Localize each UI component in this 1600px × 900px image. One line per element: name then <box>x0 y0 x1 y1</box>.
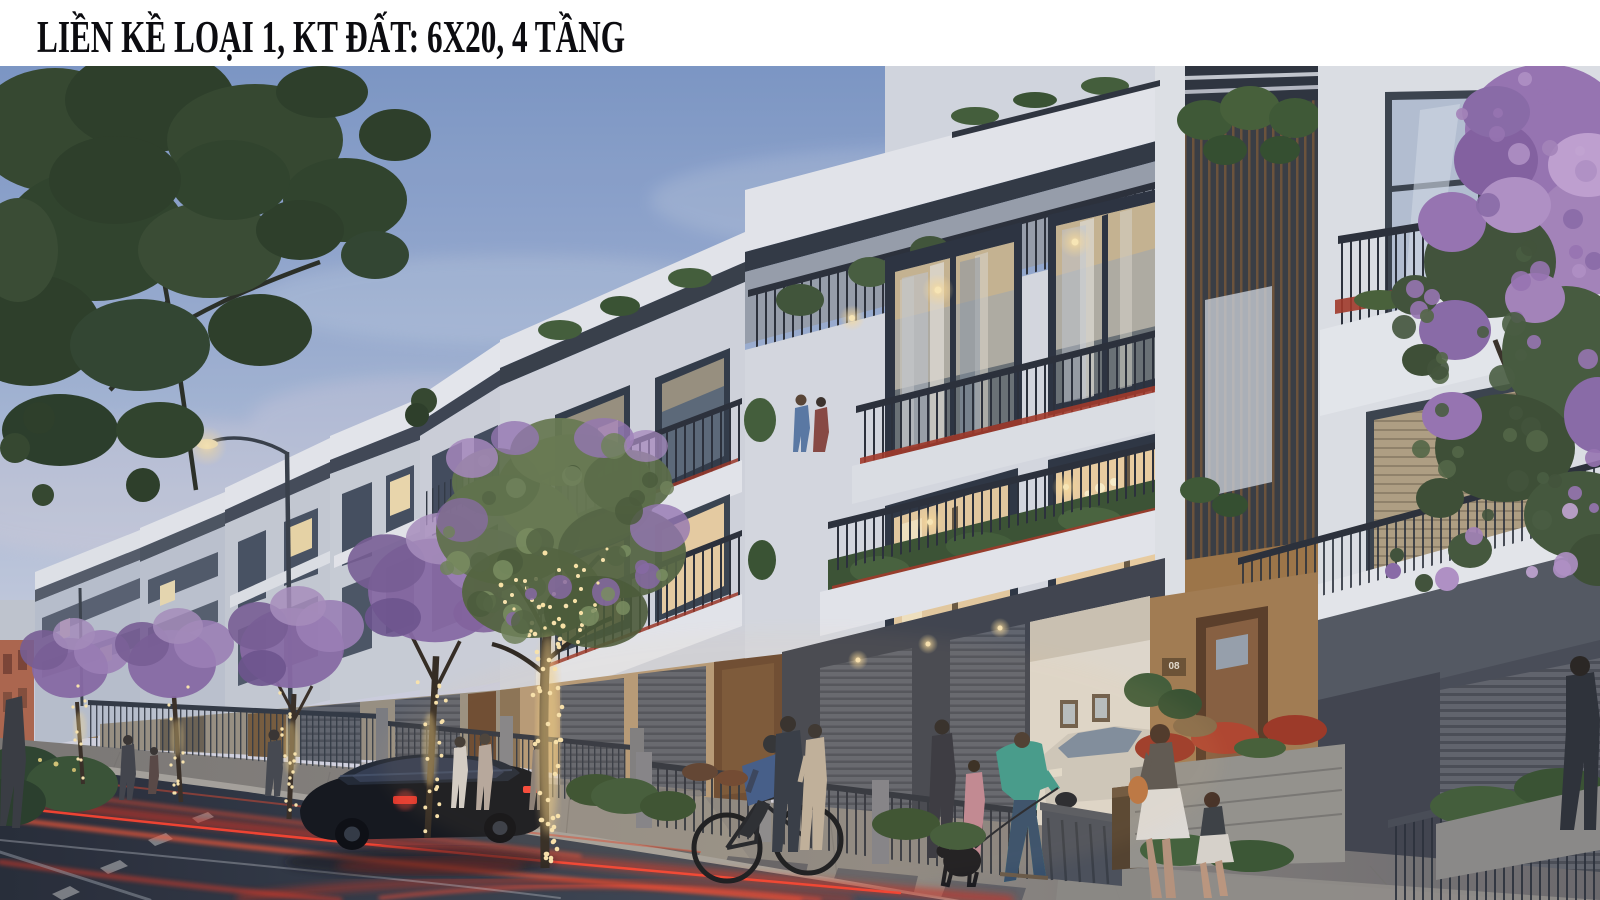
svg-text:LIỀN KỀ LOẠI 1, KT ĐẤT: 6X20,: LIỀN KỀ LOẠI 1, KT ĐẤT: 6X20, 4 TẦNG <box>37 10 625 62</box>
